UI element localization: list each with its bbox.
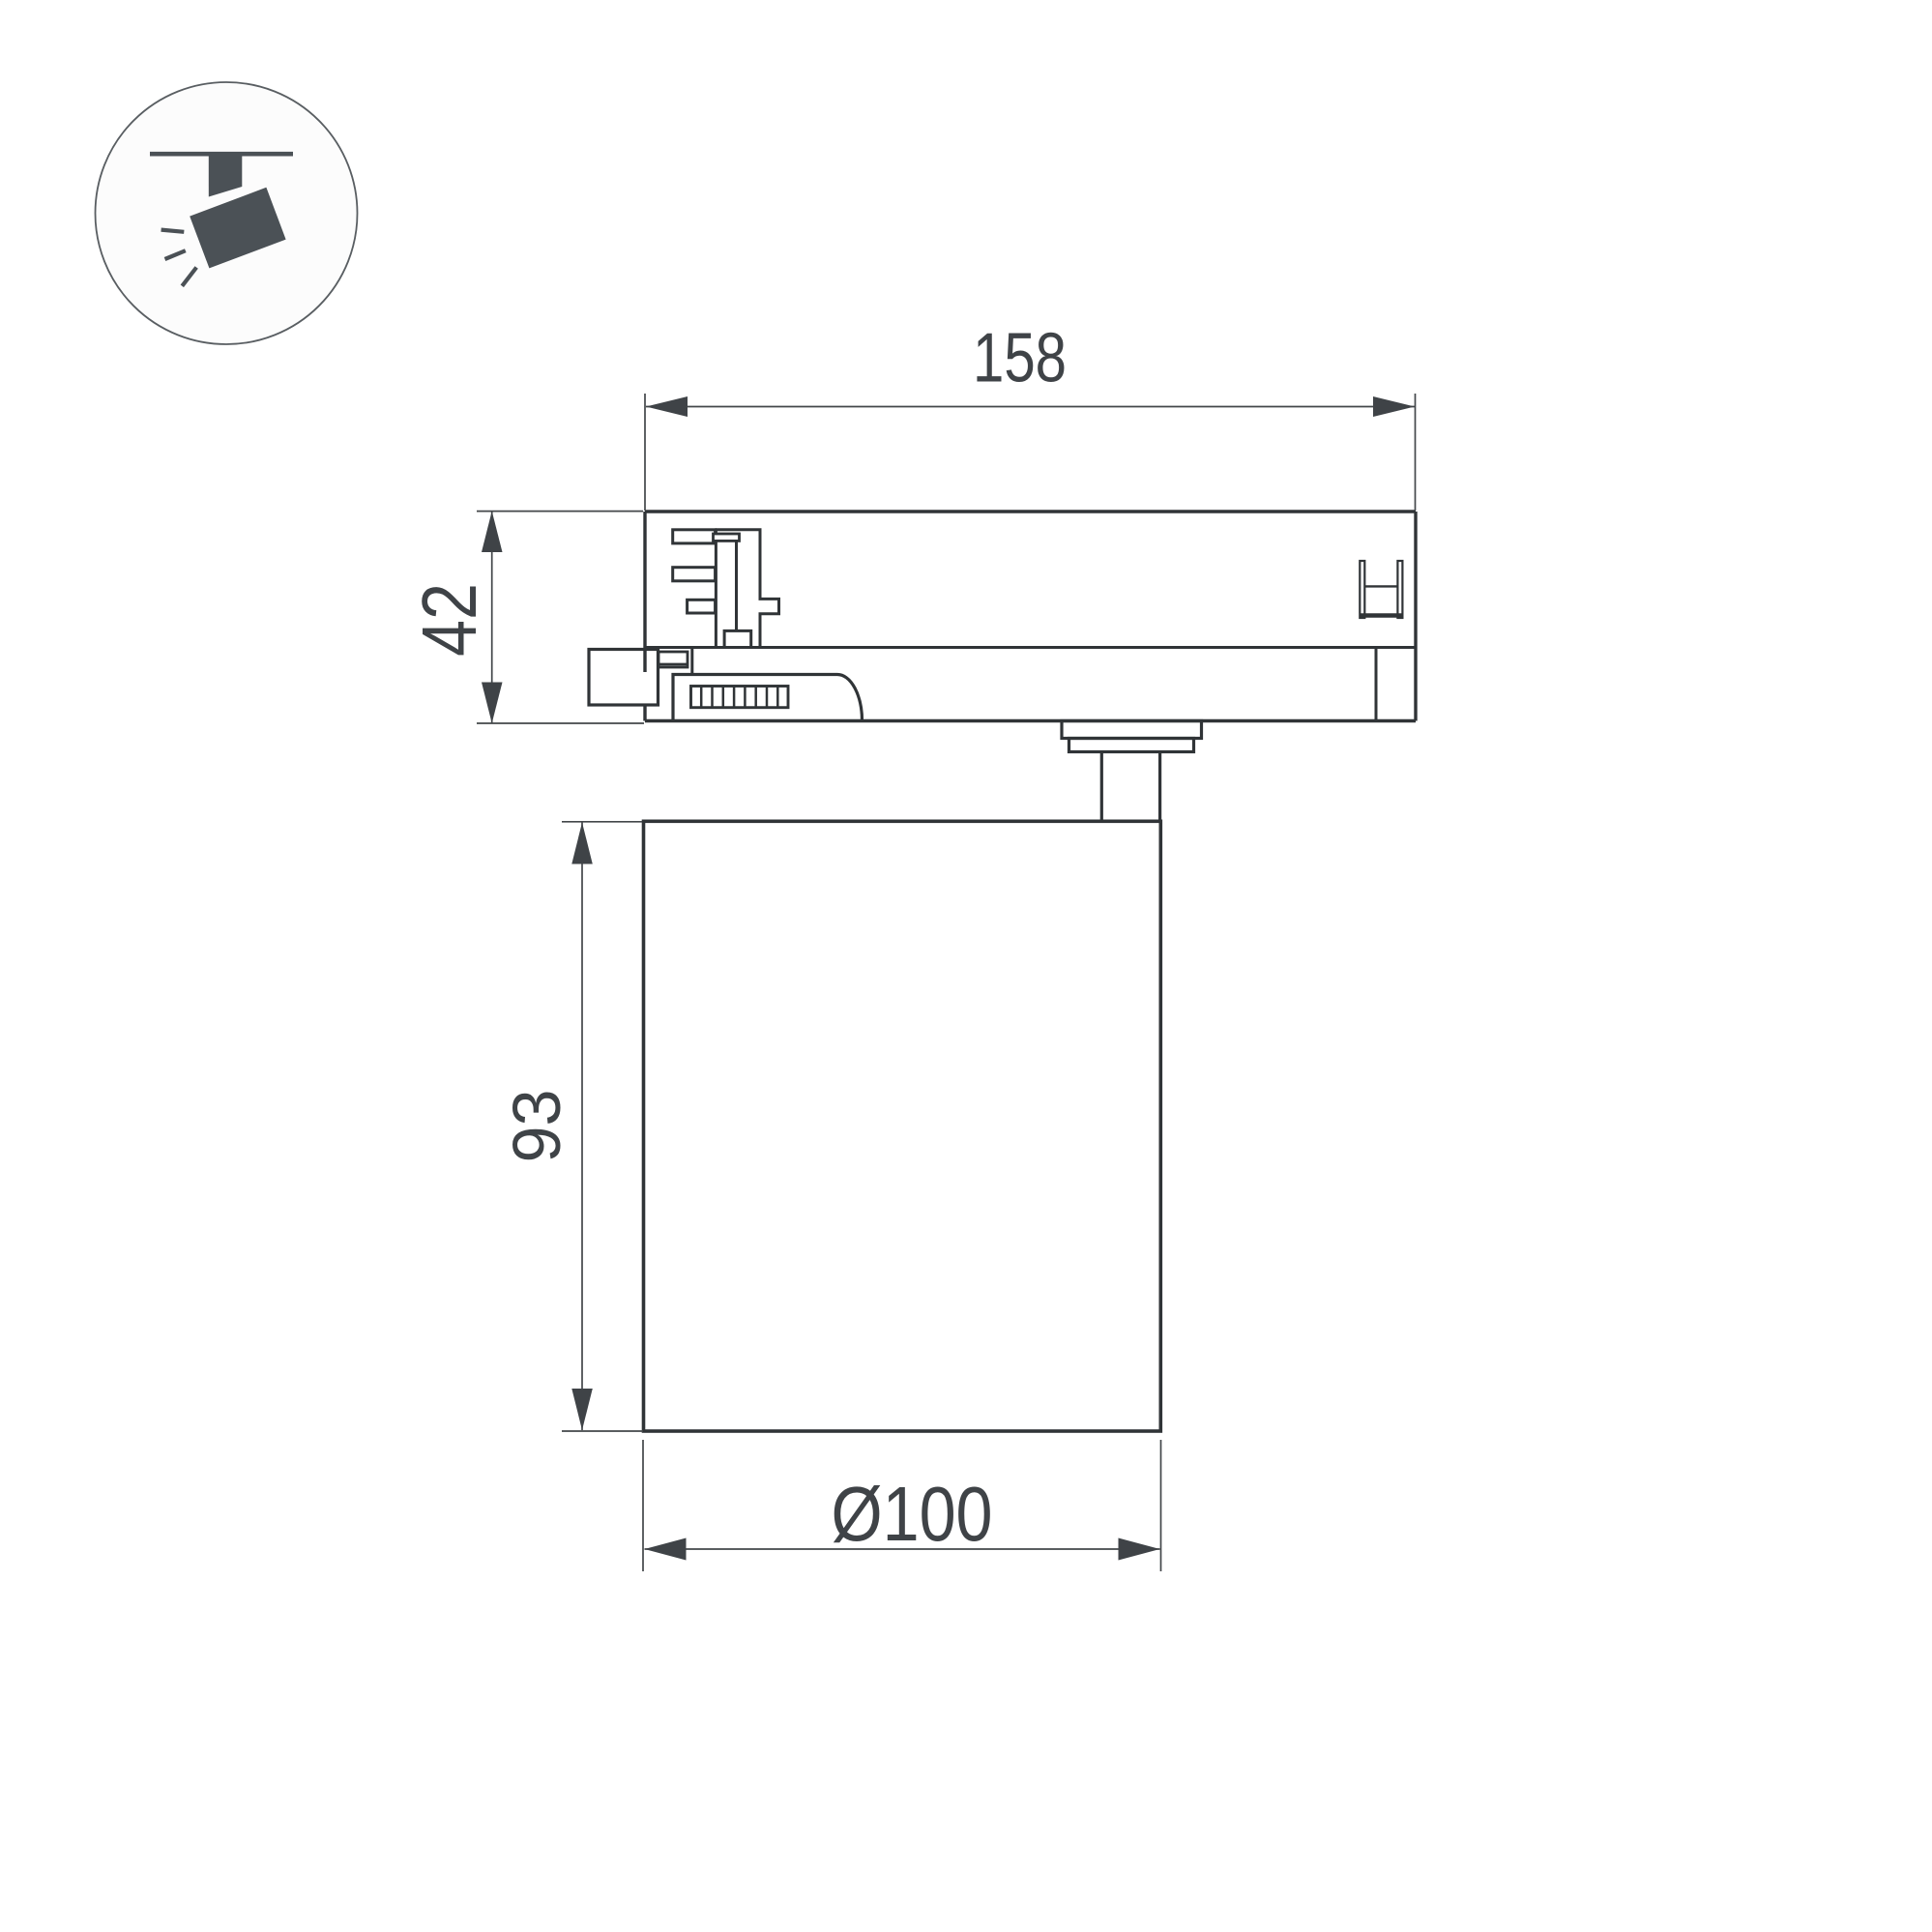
svg-text:93: 93 xyxy=(499,1090,574,1163)
svg-text:42: 42 xyxy=(406,583,492,657)
svg-text:158: 158 xyxy=(973,320,1067,397)
svg-text:Ø100: Ø100 xyxy=(832,1471,993,1557)
